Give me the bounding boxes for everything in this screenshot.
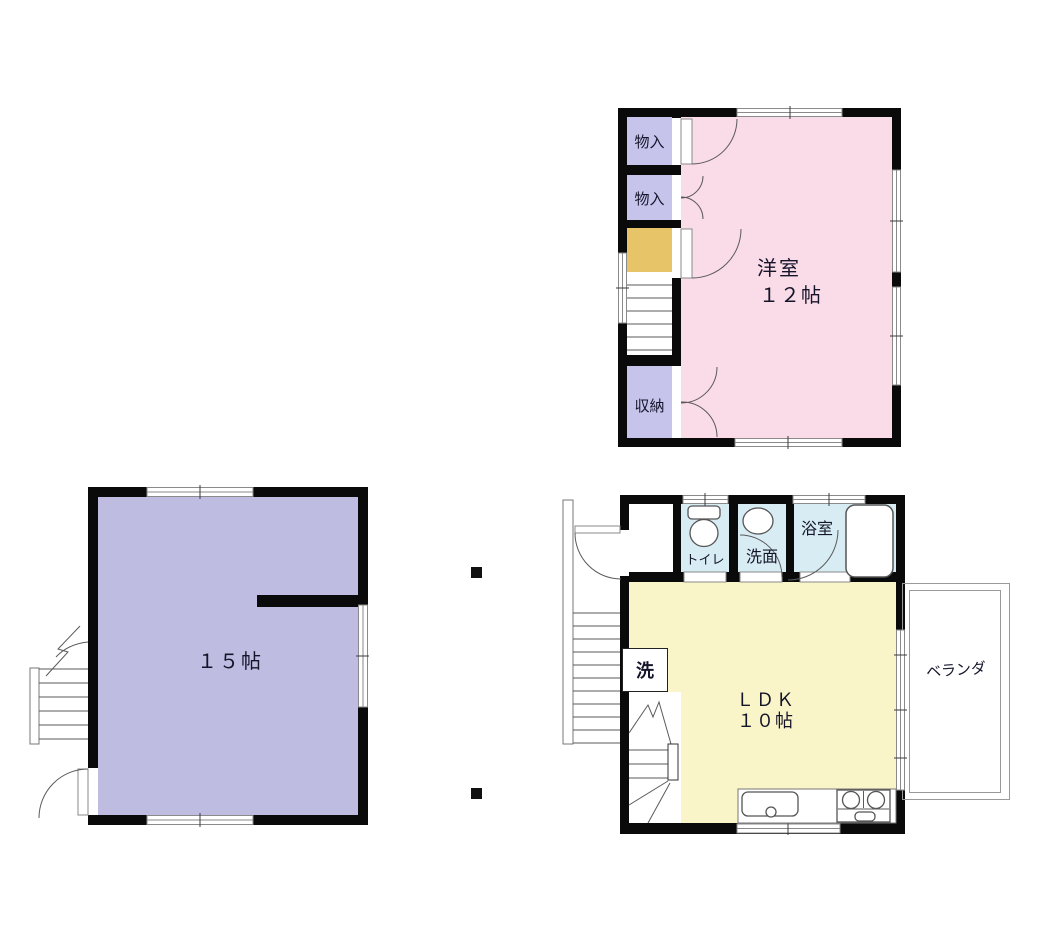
wall <box>618 108 901 117</box>
wall-sanitary <box>629 572 896 582</box>
wall <box>88 487 98 825</box>
wall <box>358 487 368 825</box>
washroom-label: 洗面 <box>738 543 786 567</box>
exterior-stairs-left <box>30 626 88 744</box>
floorplan-canvas: 洗 <box>0 0 1040 944</box>
wall <box>88 487 368 497</box>
wall <box>627 220 681 228</box>
toilet-label: トイレ <box>681 549 729 568</box>
square-marker-1 <box>471 567 482 578</box>
wall-closet-column <box>672 108 681 438</box>
veranda-inner-outline <box>909 590 1001 793</box>
bathroom-label: 浴室 <box>794 515 840 539</box>
bedroom-size-label: １２帖 <box>759 279 822 308</box>
wall <box>620 495 905 504</box>
wall <box>618 108 627 447</box>
wall <box>620 823 905 834</box>
wall <box>786 504 794 572</box>
room15-size-label: １５帖 <box>197 645 263 674</box>
stair-landing <box>627 228 672 272</box>
laundry-label: 洗 <box>636 657 654 683</box>
ldk-size-label: １０帖 <box>737 707 794 733</box>
exterior-stairs-ldk <box>563 500 620 744</box>
wall <box>627 355 681 366</box>
wall <box>88 815 368 825</box>
wall <box>618 438 901 447</box>
stairwell-upper <box>627 272 672 355</box>
washing-machine-box: 洗 <box>622 648 668 692</box>
wall <box>673 504 681 572</box>
bedroom-name-label: 洋室 <box>757 252 801 281</box>
closet1-label: 物入 <box>627 131 672 152</box>
wall-partition <box>257 595 358 607</box>
square-marker-2 <box>471 788 482 799</box>
wall <box>729 504 738 572</box>
wall <box>627 165 681 175</box>
closet2-label: 物入 <box>627 188 672 209</box>
stairwell-ldk <box>629 692 681 823</box>
storage-label: 収納 <box>627 395 672 416</box>
wall <box>892 108 901 447</box>
